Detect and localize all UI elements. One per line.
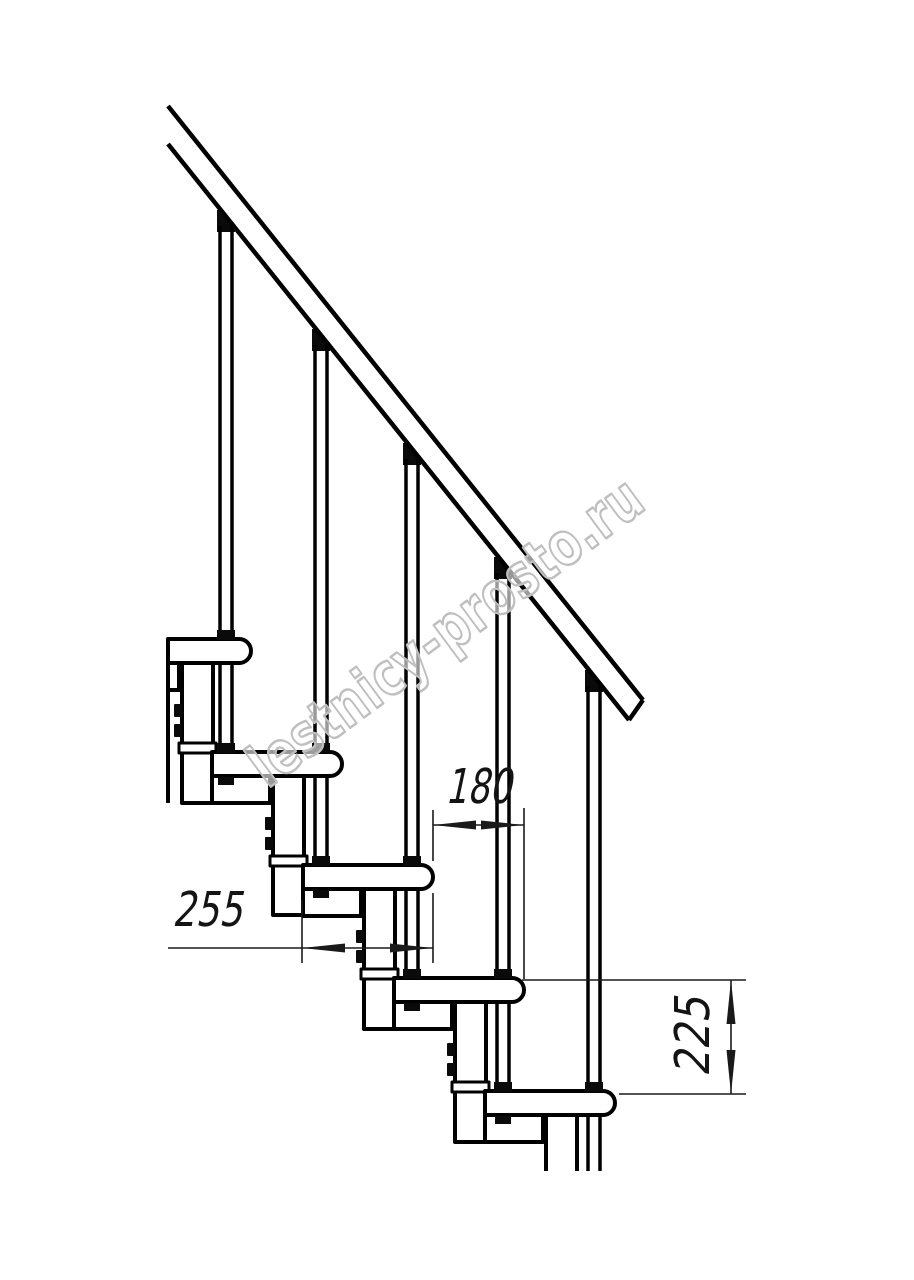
column-bolt xyxy=(265,817,273,830)
baluster-collar xyxy=(312,856,330,866)
arrow-up-icon xyxy=(727,980,736,1024)
baluster-rod xyxy=(497,573,509,1093)
arrow-right-icon xyxy=(390,944,433,953)
column-bolt xyxy=(174,704,182,717)
support-column-5-cut xyxy=(546,1115,577,1171)
baluster-collar xyxy=(494,1082,512,1092)
column-bolt xyxy=(356,930,364,943)
baluster-1 xyxy=(217,210,235,754)
staircase-drawing-page: 180 255 225 lestnicy-prosto.ru xyxy=(0,0,914,1280)
plate-under-tread-3 xyxy=(303,889,361,916)
baluster-collar xyxy=(403,856,421,866)
arrow-down-icon xyxy=(727,1050,736,1094)
baluster-rod xyxy=(220,226,232,754)
support-column-3 xyxy=(364,889,395,1029)
baluster-rod xyxy=(406,459,418,980)
arrow-right-icon xyxy=(481,821,524,830)
plate-under-tread-5 xyxy=(485,1115,543,1142)
baluster-nut xyxy=(218,777,234,785)
staircase-technical-drawing: 180 255 225 lestnicy-prosto.ru xyxy=(0,0,914,1280)
column-bolt xyxy=(447,1043,455,1056)
plate-under-tread-4 xyxy=(394,1002,452,1029)
baluster-collar xyxy=(403,969,421,979)
baluster-collar xyxy=(585,1082,603,1092)
column-bolt xyxy=(356,950,364,963)
tread-1 xyxy=(168,639,251,663)
baluster-collar xyxy=(217,743,235,753)
arrow-left-icon xyxy=(302,944,345,953)
dimension-value-step-run: 180 xyxy=(442,759,520,814)
baluster-collar xyxy=(494,969,512,979)
tread-5 xyxy=(485,1091,615,1115)
column-bolt xyxy=(174,724,182,737)
dimension-value-tread-depth: 255 xyxy=(169,882,251,937)
support-column-4 xyxy=(455,1002,486,1142)
arrow-left-icon xyxy=(433,821,476,830)
tread-4 xyxy=(394,978,524,1002)
watermark: lestnicy-prosto.ru xyxy=(235,463,658,801)
support-column-1 xyxy=(182,663,213,803)
column-bolt xyxy=(447,1063,455,1076)
baluster-nut xyxy=(495,1116,511,1124)
baluster-nut xyxy=(313,890,329,898)
baluster-nut xyxy=(404,1003,420,1011)
baluster-3 xyxy=(403,443,421,980)
baluster-collar xyxy=(217,630,235,640)
tread-3 xyxy=(303,865,433,889)
baluster-2 xyxy=(312,329,330,867)
baluster-rod xyxy=(315,345,327,867)
dimension-value-step-rise: 225 xyxy=(665,988,720,1080)
dimension-step-rise: 225 xyxy=(522,980,746,1094)
column-bolt xyxy=(265,837,273,850)
